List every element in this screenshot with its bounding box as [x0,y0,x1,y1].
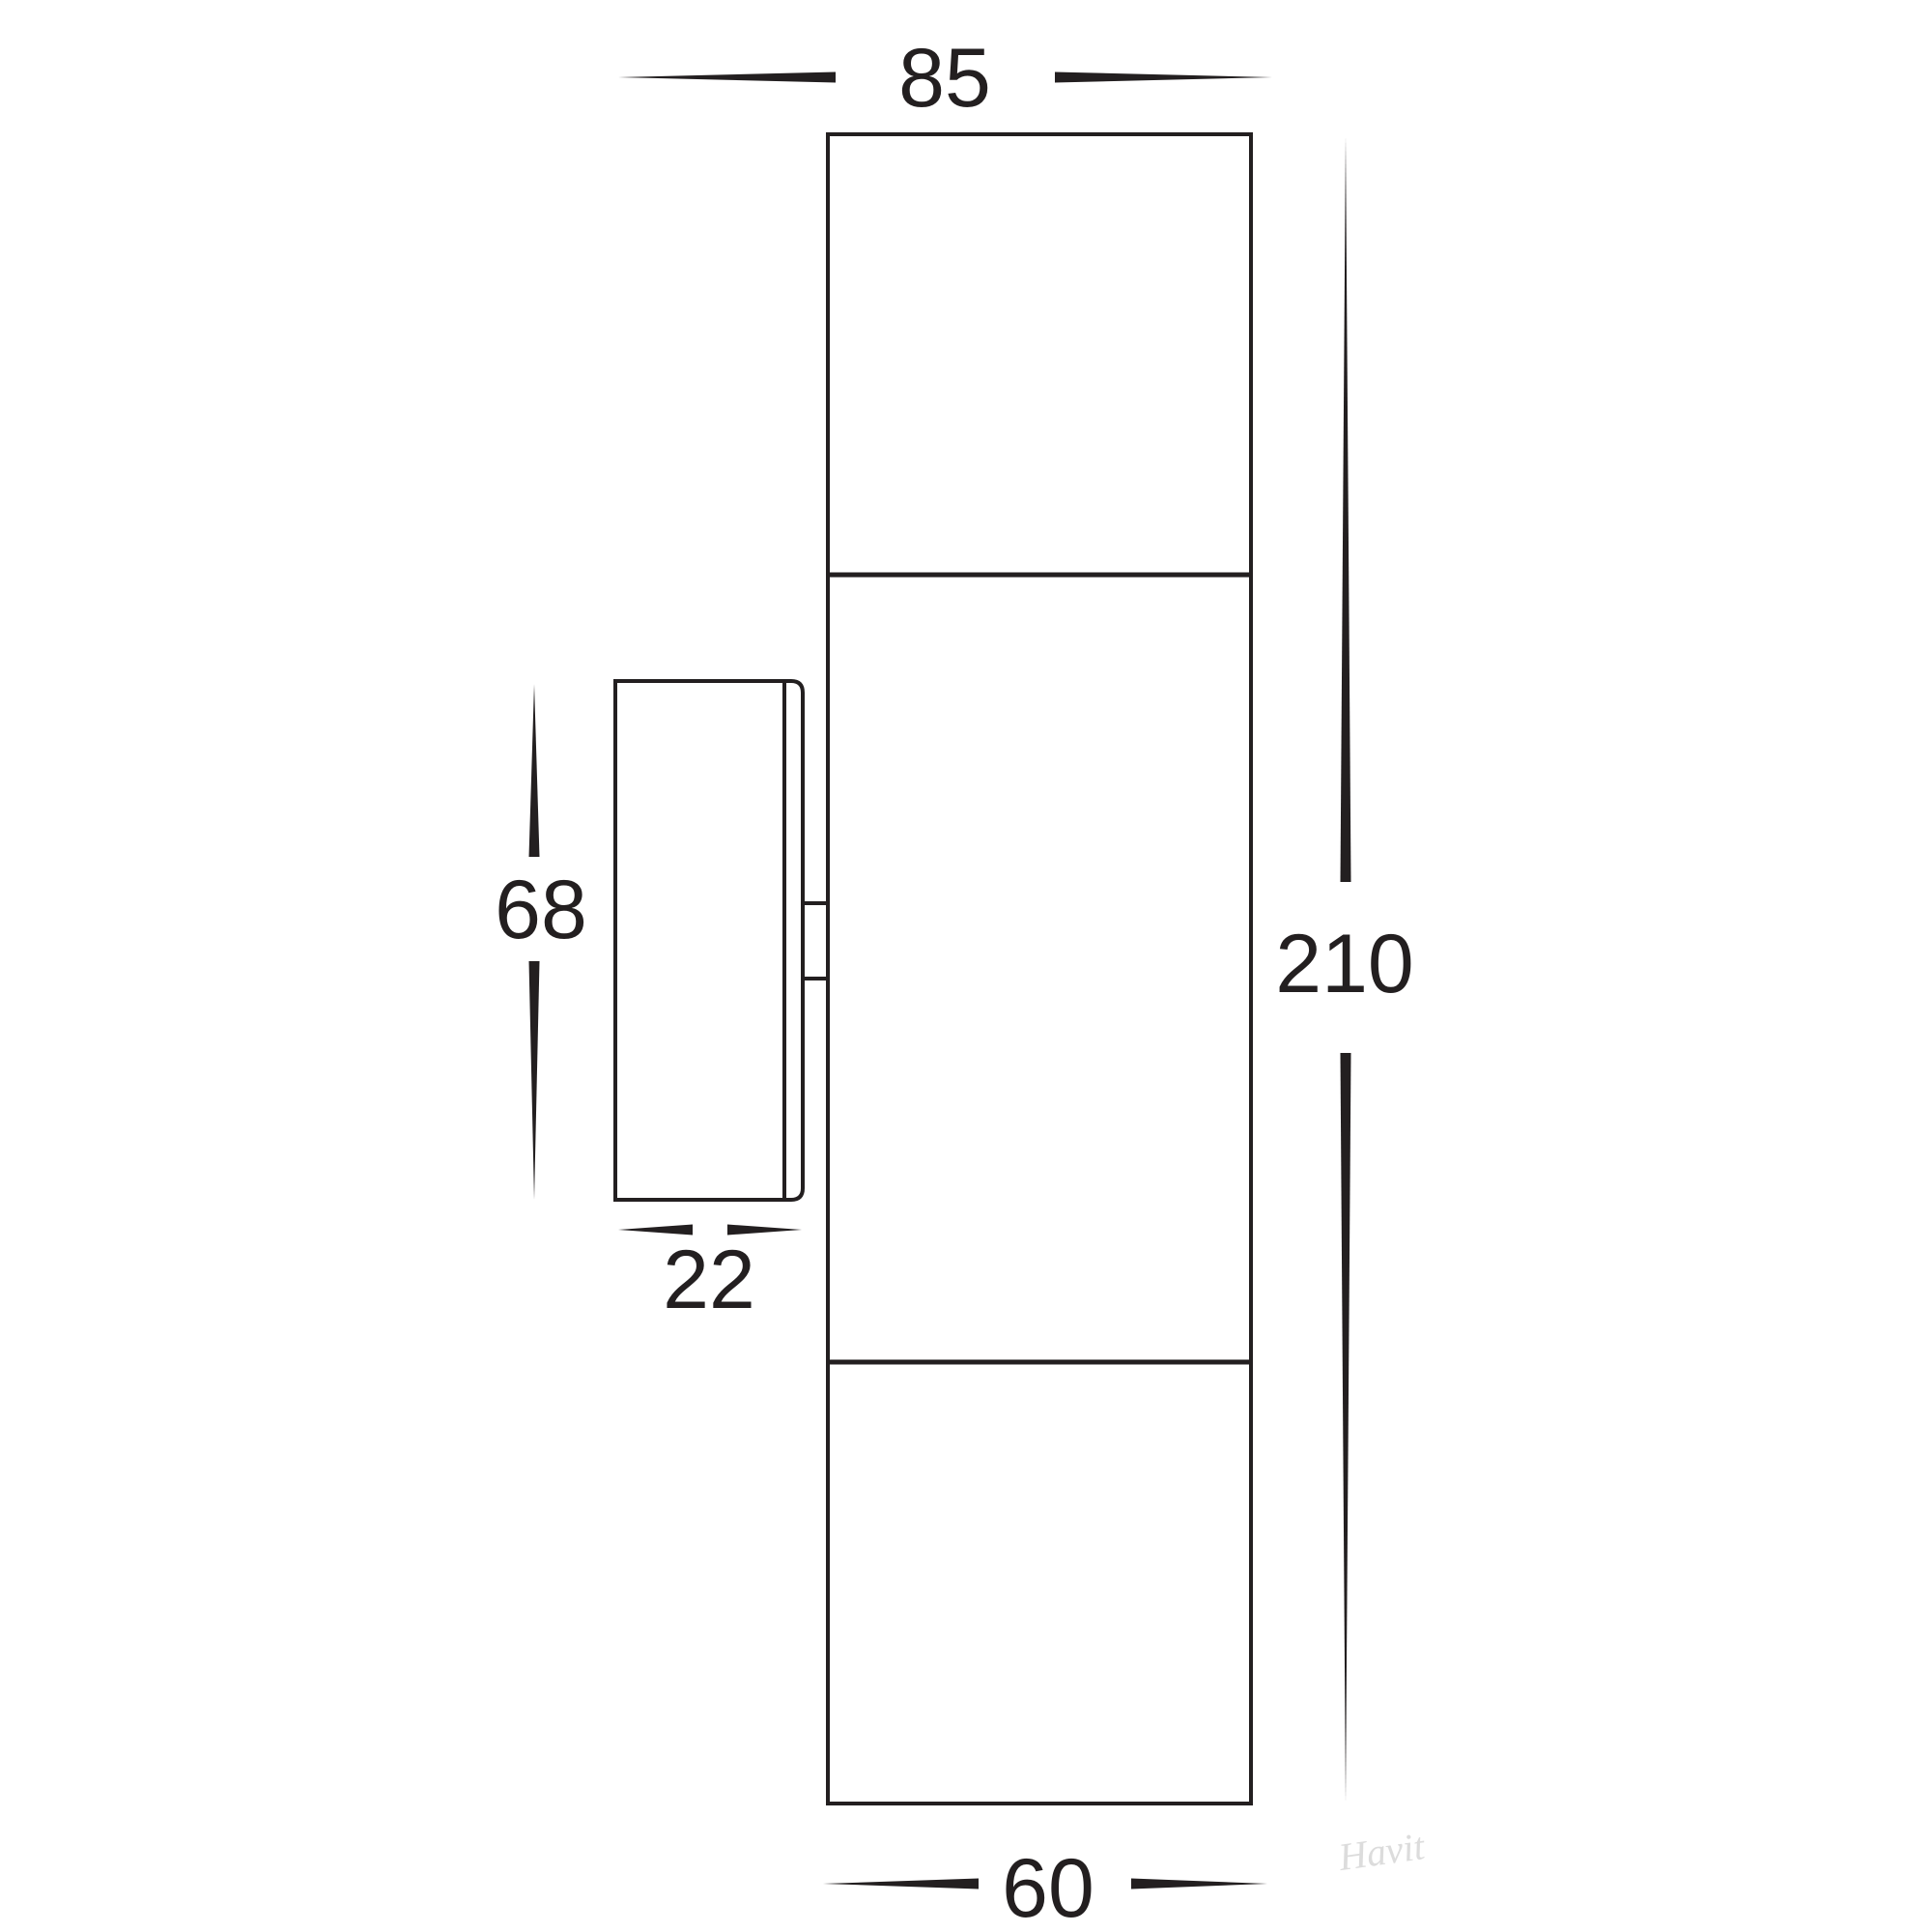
dim-bottom-width-label: 60 [1002,1842,1094,1932]
dim-top-width-label: 85 [898,32,991,125]
dim-backplate-height-label: 68 [495,864,587,956]
dim-overall-height-label: 210 [1275,918,1414,1010]
drawing-background [0,0,1932,1932]
dimension-drawing: 85 210 68 22 60 Havit [0,0,1932,1932]
dim-backplate-depth-label: 22 [663,1234,755,1326]
